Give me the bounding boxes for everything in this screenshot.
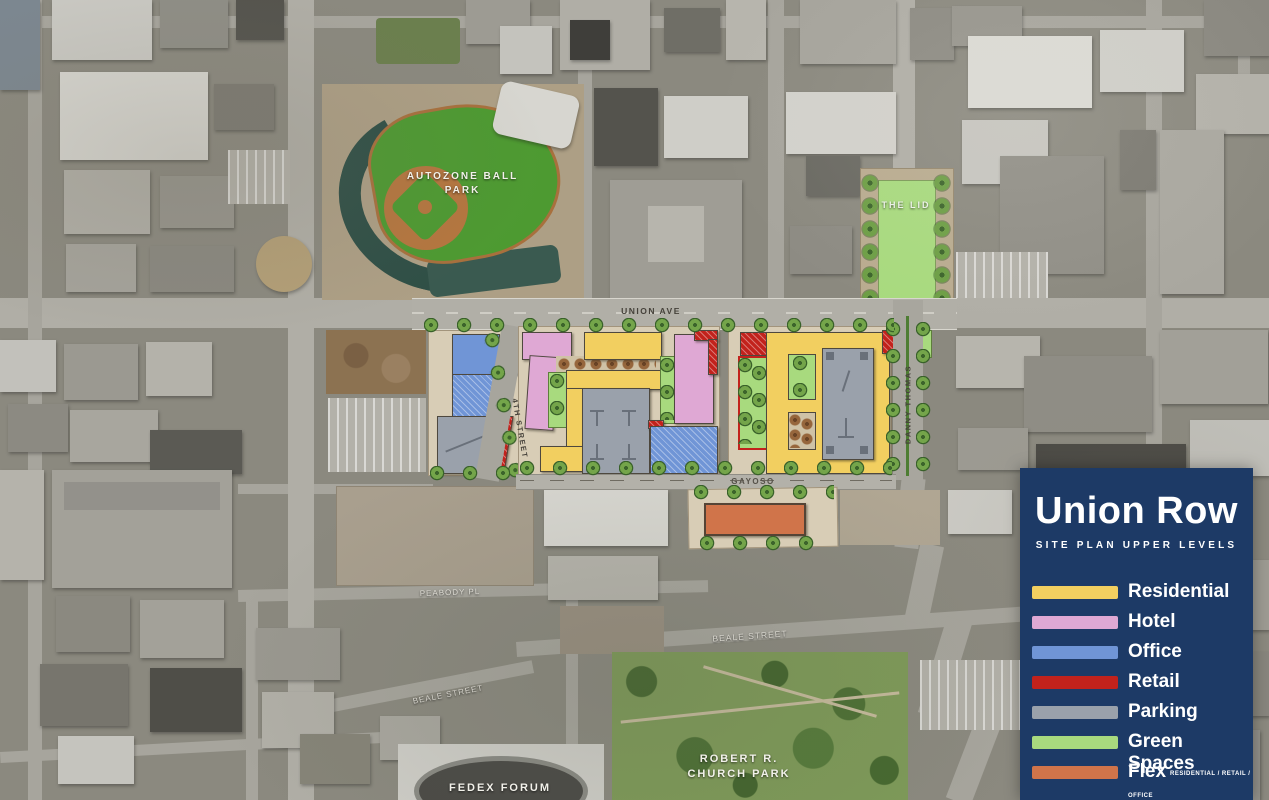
label-union-ave: UNION AVE (606, 306, 696, 316)
building (664, 96, 748, 158)
tree-row (520, 461, 892, 476)
street (768, 0, 784, 300)
parking-marking (860, 446, 868, 454)
street-overpass (288, 0, 314, 800)
parking-lot (956, 252, 1048, 298)
legend-label: Hotel (1128, 611, 1176, 633)
building (60, 72, 208, 160)
label-fedex-forum: FEDEX FORUM (430, 782, 570, 794)
pitcher-mound (418, 200, 432, 214)
vacant-lot (560, 606, 664, 654)
street (246, 596, 258, 800)
tree-row (861, 174, 879, 314)
vacant-lot (840, 490, 940, 545)
parking-marking (860, 352, 868, 360)
building (56, 596, 130, 652)
building (300, 734, 370, 784)
legend-swatch-office (1032, 646, 1118, 659)
building (664, 8, 720, 52)
legend-label: Residential (1128, 581, 1229, 603)
construction-site (326, 330, 426, 394)
tree-row (694, 485, 834, 500)
building (150, 668, 242, 732)
parking-marking (838, 436, 854, 438)
building (968, 36, 1092, 108)
tree-row (660, 358, 675, 420)
parking-marking (622, 410, 636, 412)
building (8, 404, 68, 452)
flex-building (704, 503, 806, 536)
legend-label: FlexRESIDENTIAL / RETAIL / OFFICE (1128, 761, 1253, 800)
legend-label: Office (1128, 641, 1182, 663)
building (0, 0, 40, 90)
trees (376, 18, 460, 64)
building (0, 340, 56, 392)
building (544, 490, 668, 546)
building (52, 0, 152, 60)
building (40, 664, 128, 726)
building (150, 430, 242, 474)
tree-row (752, 366, 767, 444)
building (1120, 130, 1156, 190)
parking-marking (826, 446, 834, 454)
legend-label-flex: Flex (1128, 761, 1166, 782)
legend-swatch-retail (1032, 676, 1118, 689)
legend-swatch-green-spaces (1032, 736, 1118, 749)
parking-lot (328, 398, 426, 472)
legend-label: Parking (1128, 701, 1198, 723)
lane-dashes (520, 480, 892, 481)
tree-row (886, 322, 901, 480)
retail-building (708, 339, 718, 375)
building (806, 156, 860, 196)
building (1160, 130, 1224, 294)
building (70, 410, 158, 462)
legend-label: Retail (1128, 671, 1180, 693)
tree-row (801, 418, 814, 448)
tree-row (430, 466, 510, 481)
legend-item-parking: Parking (1020, 697, 1253, 727)
building (0, 470, 44, 580)
building (548, 556, 658, 600)
parking-marking (596, 410, 598, 426)
legend-swatch-residential (1032, 586, 1118, 599)
building (236, 0, 284, 40)
parking-marking (590, 410, 604, 412)
legend-title: Union Row (1020, 490, 1253, 533)
building (800, 0, 896, 64)
building (1024, 356, 1152, 432)
map-canvas: AUTOZONE BALL PARK THE LID ROBERT R. CHU… (0, 0, 1269, 800)
building (790, 226, 852, 274)
label-danny-thomas: DANNY THOMAS (904, 353, 913, 457)
building (146, 342, 212, 396)
label-ballpark: AUTOZONE BALL PARK (395, 170, 530, 198)
building (256, 628, 340, 680)
building (58, 736, 134, 784)
building (786, 92, 896, 154)
parking-marking (622, 458, 636, 460)
legend-subtitle: SITE PLAN UPPER LEVELS (1020, 540, 1253, 551)
rooftop-detail (64, 482, 220, 510)
building (500, 26, 552, 74)
building (910, 8, 954, 60)
label-gayoso: GAYOSO (718, 477, 788, 486)
parking-marking (628, 410, 630, 426)
building (160, 176, 234, 228)
courtyard (648, 206, 704, 262)
residential-building (566, 370, 662, 390)
legend-panel: Union Row SITE PLAN UPPER LEVELS Residen… (1020, 468, 1253, 800)
building (64, 344, 138, 400)
plaza-circle (256, 236, 312, 292)
vacant-lot (336, 486, 534, 586)
legend-item-retail: Retail (1020, 667, 1253, 697)
legend-item-residential: Residential (1020, 577, 1253, 607)
legend-item-flex: FlexRESIDENTIAL / RETAIL / OFFICE (1020, 757, 1253, 787)
building (64, 170, 150, 234)
label-the-lid: THE LID (874, 200, 938, 210)
legend-item-office: Office (1020, 637, 1253, 667)
legend-item-hotel: Hotel (1020, 607, 1253, 637)
tree-row (793, 356, 808, 398)
building (594, 88, 658, 166)
label-church-park: ROBERT R. CHURCH PARK (672, 752, 806, 782)
building (1100, 30, 1184, 92)
building (958, 428, 1028, 470)
building (66, 244, 136, 292)
tree-row (916, 322, 931, 480)
tree-row (700, 536, 820, 551)
building (1160, 330, 1268, 404)
residential-building (584, 332, 662, 360)
tree-row (424, 318, 894, 333)
building (160, 0, 228, 48)
parking-marking (845, 418, 847, 438)
building (948, 490, 1012, 534)
building (1196, 74, 1269, 134)
parking-marking (826, 352, 834, 360)
building (150, 246, 234, 292)
legend-swatch-parking (1032, 706, 1118, 719)
building (140, 600, 224, 658)
parking-structure (822, 348, 874, 460)
tree-row (738, 358, 753, 444)
legend-swatch-flex (1032, 766, 1118, 779)
building (726, 0, 766, 60)
tree-row (550, 374, 565, 424)
parking-lot (228, 150, 290, 204)
legend-swatch-hotel (1032, 616, 1118, 629)
legend-item-green-spaces: Green Spaces (1020, 727, 1253, 757)
tree-row (933, 174, 951, 314)
building (1204, 0, 1269, 56)
building (214, 84, 274, 130)
parking-marking (590, 458, 604, 460)
building (570, 20, 610, 60)
retail-building (740, 332, 768, 356)
